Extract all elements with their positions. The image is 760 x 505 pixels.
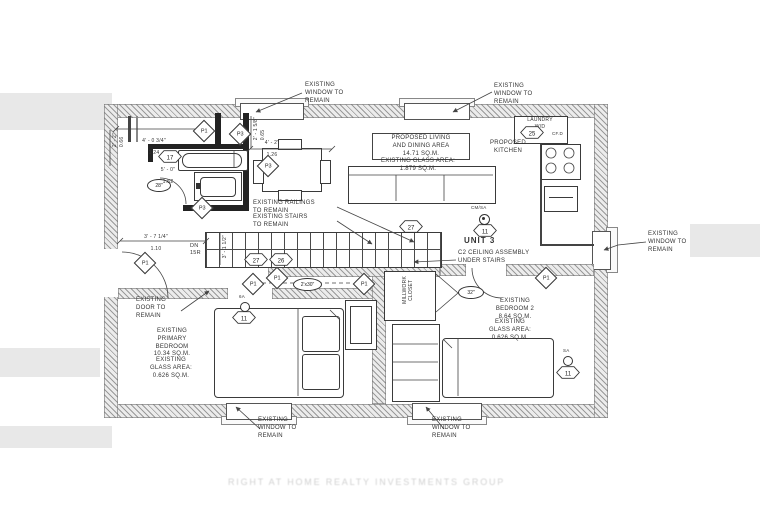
door-width-tag-bedroom2: 32": [458, 286, 484, 299]
wall-tag-label: P1: [142, 260, 149, 266]
wall-tag-label: P1: [361, 281, 368, 287]
dim-entry: 3' - 7 1/4" 1.10: [134, 228, 178, 252]
wall-tag-label: P1: [250, 281, 257, 287]
dim-imperial: 3' - 1 1/2": [222, 235, 228, 258]
dim-imperial: 5' - 0": [161, 167, 175, 173]
dim-metric: 1.26: [267, 152, 278, 158]
unit-label: UNIT 3: [464, 236, 495, 246]
dim-imperial: 4' - 0 3/4": [142, 138, 166, 144]
hex-label: 27: [253, 259, 260, 265]
hex-label: 25: [529, 132, 536, 138]
wall-tag-label: P3: [265, 163, 272, 169]
dim-metric: 1.24: [149, 150, 160, 156]
bedroom2-glass-label: EXISTING GLASS AREA: 0.626 SQ.M.: [476, 319, 544, 342]
stairs-callout: EXISTING STAIRS TO REMAIN: [253, 214, 308, 230]
watermark: RIGHT AT HOME REALTY INVESTMENTS GROUP: [228, 477, 505, 487]
wall-tag-label: P1: [201, 128, 208, 134]
hex-label: 27: [408, 226, 415, 232]
window-callout-top-left: EXISTING WINDOW TO REMAIN: [305, 82, 343, 105]
plan-linework: [0, 0, 760, 505]
wall-tag-label: P1: [274, 275, 281, 281]
window-callout-bottom-left: EXISTING WINDOW TO REMAIN: [258, 417, 296, 440]
window-callout-right: EXISTING WINDOW TO REMAIN: [648, 231, 686, 254]
bedroom2-label: EXISTING BEDROOM 2 8.64 SQ.M.: [484, 298, 546, 321]
hex-tag-primary: 11: [232, 311, 256, 324]
wall-tag-label: P3: [199, 205, 206, 211]
detector-icon: [240, 302, 250, 312]
stair-down-note: DN 15R: [190, 243, 201, 257]
dim-metric: 1.52: [163, 179, 174, 185]
hex-tag-stair-b: 26: [269, 253, 293, 266]
detector-icon-dot: [482, 217, 485, 220]
detector-label-primary: 6A: [239, 294, 245, 300]
window-callout-bottom-right: EXISTING WINDOW TO REMAIN: [432, 417, 470, 440]
kitchen-label: PROPOSED KITCHEN: [482, 140, 534, 156]
detector-label-bedroom2: SA: [563, 348, 570, 354]
hex-tag-bedroom2: 11: [556, 366, 580, 379]
primary-glass-label: EXISTING GLASS AREA: 0.626 SQ.M.: [138, 357, 204, 380]
hex-label: 11: [482, 230, 489, 236]
hex-label: 11: [565, 372, 572, 378]
dim-imperial: 4' - 2": [265, 140, 279, 146]
wall-tag-label: P3: [237, 131, 244, 137]
living-room-label: PROPOSED LIVING AND DINING AREA 14.71 SQ…: [372, 133, 470, 160]
hex-tag-laundry: 25: [520, 126, 544, 139]
dim-imperial: 3' - 7 1/4": [144, 234, 168, 240]
door-callout: EXISTING DOOR TO REMAIN: [136, 297, 166, 320]
dim-stair-width: 3' - 1 1/2": [222, 235, 228, 258]
dim-left-wall: 2' - 2" 0.66: [112, 133, 125, 147]
dim-bath-width: 4' - 0 3/4" 1.24: [132, 132, 176, 156]
dim-metric: 0.66: [119, 133, 125, 147]
hex-tag-stair-a: 27: [244, 253, 268, 266]
dim-metric: 1.10: [151, 246, 162, 252]
dim-bath-side: 2' - 1 5/8" 0.65: [253, 117, 266, 140]
ceiling-callout: C2 CEILING ASSEMBLY UNDER STAIRS: [458, 250, 529, 266]
dim-imperial: 2' - 2": [112, 133, 118, 147]
dim-metric: 0.65: [260, 117, 266, 140]
wall-tag-label: P1: [543, 275, 550, 281]
primary-bedroom-label: EXISTING PRIMARY BEDROOM 10.34 SQ.M.: [140, 328, 204, 359]
hex-tag-living: 27: [399, 220, 423, 233]
hex-label: 11: [241, 317, 248, 323]
window-callout-top-right: EXISTING WINDOW TO REMAIN: [494, 83, 532, 106]
dim-imperial: 2' - 1 5/8": [253, 117, 259, 140]
detector-icon: [563, 356, 573, 366]
floor-plan-page: LAUNDRY W/D CF.D MILLWORK CLOSET: [0, 0, 760, 505]
detector-label-kitchen: CM/SA: [471, 205, 487, 211]
living-glass-label: EXISTING GLASS AREA: 1.879 SQ.M.: [366, 158, 470, 174]
door-width-tag-hall: 2'x30": [293, 278, 322, 291]
hex-label: 26: [278, 259, 285, 265]
dim-tub-wall: 5' - 0" 1.52: [150, 161, 186, 185]
